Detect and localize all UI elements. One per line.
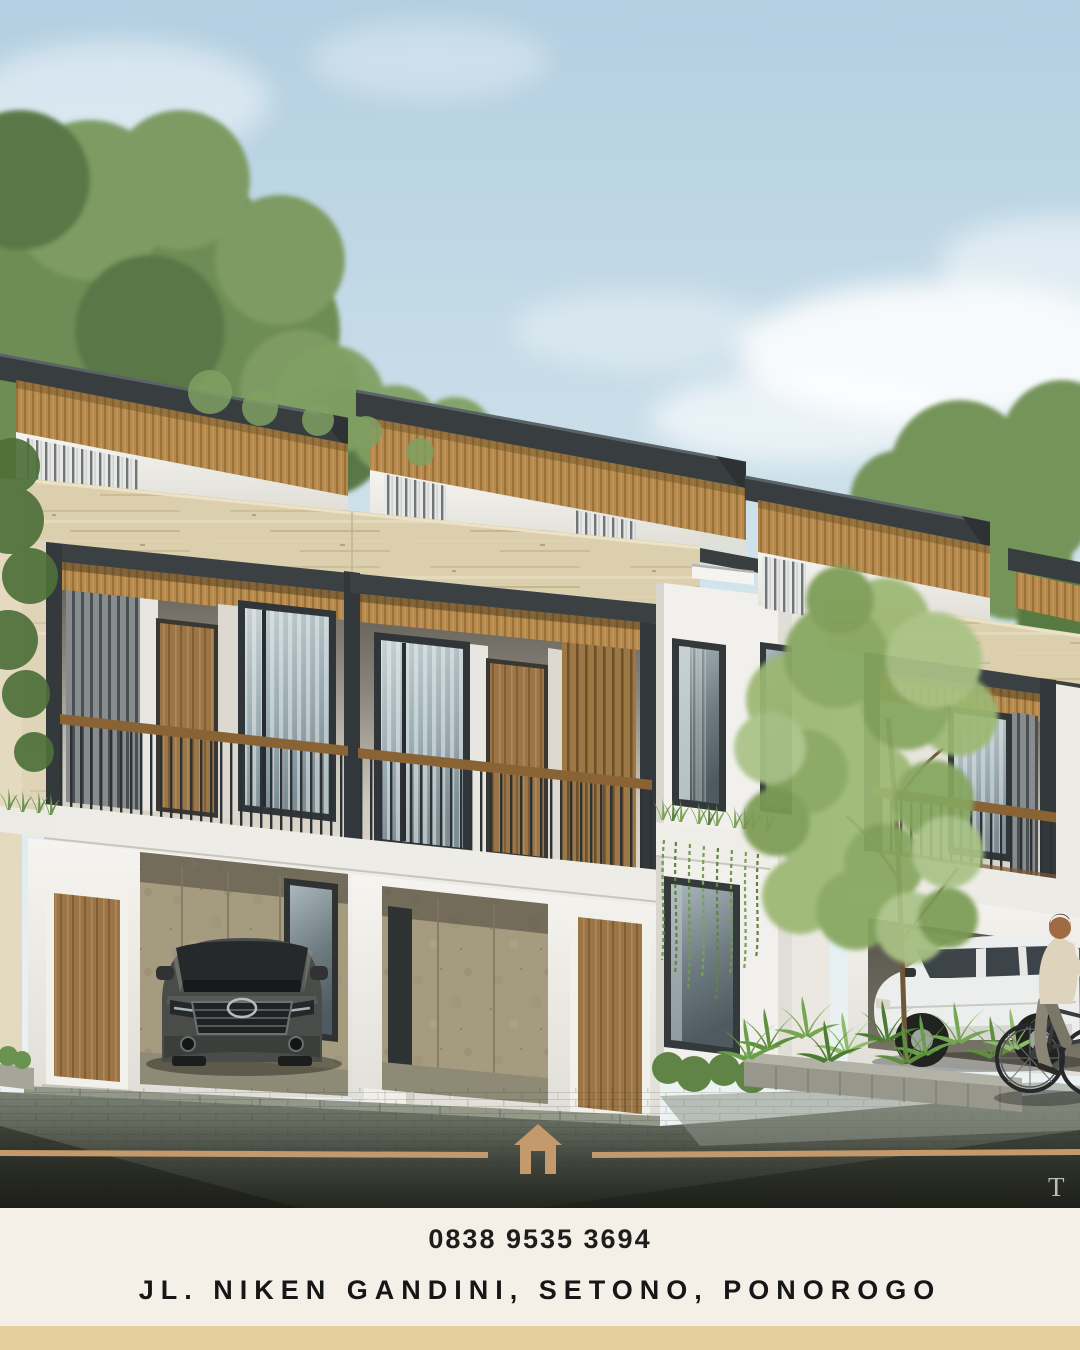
- real-estate-poster: T 0838 9535 3694 JL. NIKEN GANDINI, SETO…: [0, 0, 1080, 1350]
- phone-number: 0838 9535 3694: [0, 1208, 1080, 1255]
- tower-window-upper: [672, 638, 726, 812]
- footer-accent-band: [0, 1326, 1080, 1350]
- address: JL. NIKEN GANDINI, SETONO, PONOROGO: [0, 1275, 1080, 1306]
- ground-floor-a: [28, 838, 352, 1100]
- carport-window-b: [388, 906, 412, 1068]
- watermark: T: [1048, 1172, 1065, 1202]
- architectural-render: T: [0, 0, 1080, 1208]
- balcony-recess-b: [358, 594, 652, 880]
- footer: 0838 9535 3694 JL. NIKEN GANDINI, SETONO…: [0, 1208, 1080, 1350]
- balcony-recess-a: [60, 562, 348, 844]
- townhouse-left-pair: [0, 352, 746, 1150]
- carport-b: [382, 886, 548, 1104]
- entry-door-a: [42, 884, 132, 1100]
- curb: [0, 1064, 34, 1090]
- slat-screen-upper-c: [762, 556, 806, 616]
